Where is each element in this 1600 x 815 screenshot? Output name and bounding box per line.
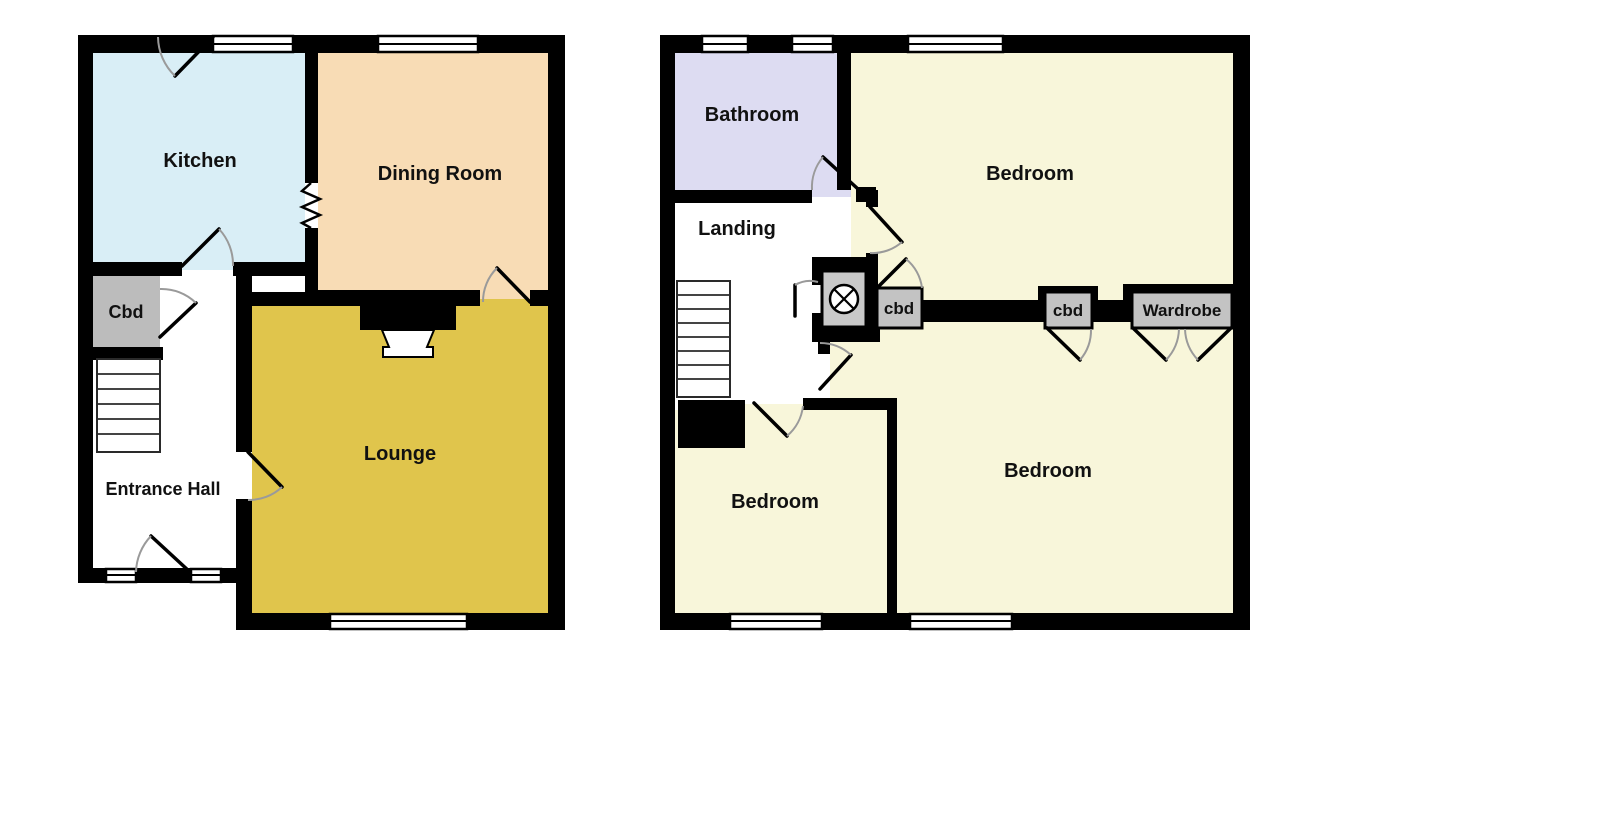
wall-airing-bottom (812, 327, 880, 342)
cbd2-label: cbd (1053, 301, 1083, 320)
wall-right (1233, 35, 1250, 630)
wall-lounge-top-left (252, 292, 305, 306)
bedroom-small-door-opening (745, 404, 803, 412)
stairs-outline (97, 359, 160, 452)
wardrobe-label: Wardrobe (1143, 301, 1222, 320)
floorplan-canvas: Kitchen Dining Room Cbd Entrance Hall Lo… (0, 0, 1600, 815)
wall-hall-lounge-upper (236, 262, 252, 452)
wall-bedroom-small-top (803, 398, 897, 410)
wall-landing-block (678, 400, 745, 448)
first-floor-plan: Bathroom Landing Bedroom Bedroom Bedroom… (660, 35, 1250, 630)
kitchen-label: Kitchen (163, 150, 236, 172)
wall-left (78, 35, 93, 583)
floorplan-drawing: Kitchen Dining Room Cbd Entrance Hall Lo… (0, 0, 1600, 815)
lounge-door-opening (480, 299, 530, 307)
landing-label: Landing (698, 218, 776, 240)
ground-floor-plan: Kitchen Dining Room Cbd Entrance Hall Lo… (78, 35, 565, 630)
wall-opening-zigzag-icon (302, 183, 320, 228)
wall-top (78, 35, 565, 53)
airing-cupboard-door-swing (795, 281, 818, 316)
wall-bathroom-bottom (675, 190, 812, 203)
wall-kitchen-bottom-right (233, 262, 318, 276)
light-fitting-icon (830, 285, 858, 313)
cbd-door-swing (160, 289, 196, 337)
front-door-swing (136, 536, 190, 572)
bathroom-label: Bathroom (705, 104, 799, 126)
bedroom-back-label: Bedroom (1004, 460, 1092, 482)
bedroom-front-label: Bedroom (986, 163, 1074, 185)
dining-room-label: Dining Room (378, 163, 502, 185)
wall-right (548, 35, 565, 630)
wall-bedroom-divider (887, 398, 897, 613)
wall-kitchen-dining-upper (305, 53, 318, 183)
wall-dining-bottom-stub (530, 290, 548, 306)
bathroom-door-opening (812, 190, 856, 197)
wall-kitchen-bottom-left (93, 262, 182, 276)
chimney-breast (360, 290, 456, 330)
bedroom-small-label: Bedroom (731, 491, 819, 513)
wall-left (660, 35, 675, 630)
entrance-hall-label: Entrance Hall (105, 479, 220, 499)
kitchen-hall-opening (182, 262, 233, 270)
first-floor-stairs-icon (677, 281, 730, 397)
ground-floor-stairs-icon (97, 359, 160, 452)
wall-landing-bedroom-upper (866, 190, 878, 207)
fireplace-icon (382, 330, 434, 357)
wall-hall-lounge-lower (236, 499, 252, 630)
cbd1-label: cbd (884, 299, 914, 318)
cbd-label: Cbd (109, 302, 144, 322)
lounge-label: Lounge (364, 443, 436, 465)
